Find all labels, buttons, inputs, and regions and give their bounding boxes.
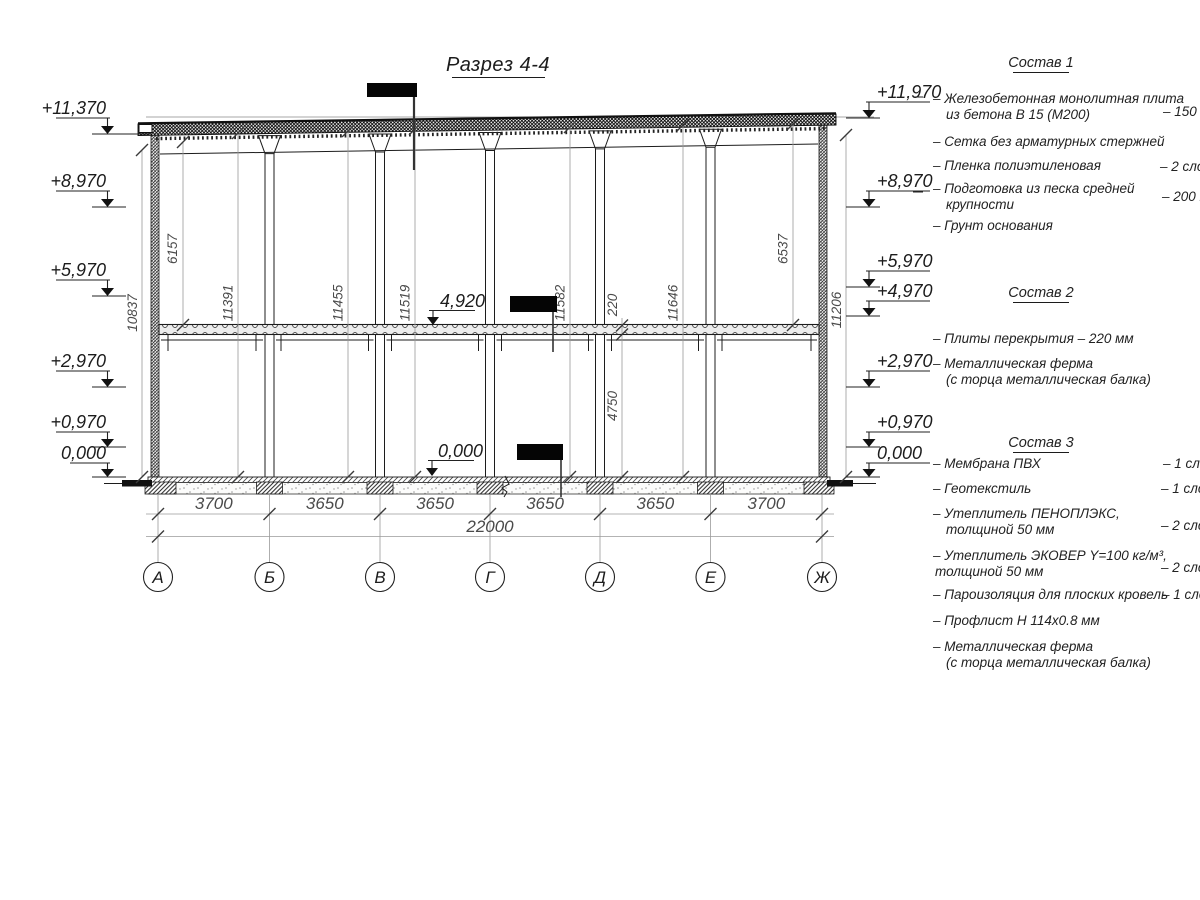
bottom-dimensions: 3700 3650 3650 3650 3650 3700 22000: [146, 494, 834, 562]
note-item: – Грунт основания: [932, 218, 1053, 233]
svg-text:Ж: Ж: [813, 568, 831, 587]
mark-left-5: 0,000: [61, 443, 126, 477]
svg-text:+4,970: +4,970: [877, 281, 933, 301]
svg-text:– 1 слой: – 1 слой: [1160, 481, 1200, 496]
note-item: – Железобетонная монолитная плита: [932, 91, 1184, 106]
note-item: – Металлическая ферма: [932, 356, 1094, 371]
note-item: – Пленка полиэтиленовая: [932, 158, 1101, 173]
note-item: – Металлическая ферма: [932, 639, 1094, 654]
svg-text:+11,370: +11,370: [42, 98, 106, 118]
mark-right-3: +4,970: [846, 281, 933, 316]
drawing-title: Разрез 4-4: [446, 54, 550, 78]
sostav3-block: Состав 3 – Мембрана ПВХ – 1 слой – Геоте…: [932, 435, 1200, 670]
svg-text:(с торца металлическая балка): (с торца металлическая балка): [946, 655, 1151, 670]
span-dim-6: 3700: [747, 494, 785, 513]
svg-text:Б: Б: [264, 568, 275, 587]
note-item: – Сетка без арматурных стержней: [932, 134, 1165, 149]
svg-text:– 200 мм: – 200 мм: [1161, 189, 1200, 204]
redacted-box-mid: [510, 296, 557, 312]
vdim-10837: 10837: [125, 294, 140, 332]
notes-column: Состав 1 – Железобетонная монолитная пли…: [913, 55, 1200, 670]
svg-text:0,000: 0,000: [438, 441, 483, 461]
total-dim: 22000: [465, 517, 514, 536]
title-text: Разрез 4-4: [446, 54, 550, 76]
axis-v: В: [366, 563, 395, 592]
svg-text:Д: Д: [592, 568, 606, 587]
right-porch: [827, 480, 876, 487]
vdim-outer-left: 10837: [125, 144, 148, 483]
sostav1-block: Состав 1 – Железобетонная монолитная пли…: [913, 55, 1200, 233]
vertical-dimensions: 10837 6157 11391 11455 11519 11582: [125, 118, 852, 483]
svg-text:толщиной 50 мм: толщиной 50 мм: [935, 564, 1043, 579]
elevation-marks-right: +11,970 +8,970 +5,970 +4,970 +2,970 +0,9…: [846, 82, 941, 477]
elevation-marks-inner: 4,920 0,000: [426, 291, 485, 476]
vdim-11646: 11646: [666, 284, 681, 321]
callout-boxes: [367, 83, 563, 497]
vdim-11206: 11206: [829, 291, 844, 328]
svg-text:+0,970: +0,970: [50, 412, 106, 432]
columns: [259, 129, 722, 477]
svg-text:– 2 слоя: – 2 слоя: [1160, 518, 1200, 533]
vdim-4750: 4750: [605, 390, 620, 421]
sostav1-title: Состав 1: [1008, 55, 1073, 71]
vdim-11391: 11391: [221, 285, 236, 322]
mark-left-4: +0,970: [50, 412, 126, 447]
column-b: [259, 136, 281, 477]
note-item: – Утеплитель ЭКОВЕР Y=100 кг/м³,: [932, 548, 1167, 563]
span-dim-3: 3650: [416, 494, 454, 513]
svg-text:(с торца металлическая балка): (с торца металлическая балка): [946, 372, 1151, 387]
note-item: – Геотекстиль: [932, 481, 1031, 496]
redacted-box-bottom: [517, 444, 563, 460]
span-dim-4: 3650: [526, 494, 564, 513]
note-item: – Пароизоляция для плоских кровель: [932, 587, 1168, 602]
mark-inner-floor: 0,000: [426, 441, 483, 476]
redacted-box-top: [367, 83, 417, 97]
note-item: – Подготовка из песка средней: [932, 181, 1135, 196]
axis-e: Е: [696, 563, 725, 592]
svg-text:Е: Е: [705, 568, 717, 587]
mark-right-5: +0,970: [846, 412, 933, 447]
note-item: – Мембрана ПВХ: [932, 456, 1042, 471]
svg-text:+11,970: +11,970: [877, 82, 941, 102]
mark-left-1: +8,970: [50, 171, 126, 207]
svg-text:из бетона В 15 (М200): из бетона В 15 (М200): [946, 107, 1090, 122]
vdim-upper-right: 6537: [776, 118, 800, 331]
vdim-h5: 11646: [666, 119, 690, 483]
section-drawing: Разрез 4-4: [0, 0, 1200, 900]
svg-text:4,920: 4,920: [440, 291, 485, 311]
svg-text:крупности: крупности: [946, 197, 1015, 212]
axis-b: Б: [255, 563, 284, 592]
mark-left-0: +11,370: [42, 98, 150, 134]
svg-text:+5,970: +5,970: [877, 251, 933, 271]
svg-text:Г: Г: [485, 568, 496, 587]
svg-text:+2,970: +2,970: [877, 351, 933, 371]
svg-text:– 2 слоя: – 2 слоя: [1159, 159, 1200, 174]
axis-bubbles: А Б В Г Д Е Ж: [144, 563, 837, 592]
column-e: [700, 129, 722, 477]
svg-text:– 1 слой: – 1 слой: [1161, 587, 1200, 602]
note-item: – Утеплитель ПЕНОПЛЭКС,: [932, 506, 1120, 521]
axis-zh: Ж: [808, 563, 837, 592]
vdim-h1: 11391: [221, 127, 245, 483]
elevation-marks-left: +11,370 +8,970 +5,970 +2,970 +0,970 0,00…: [42, 98, 150, 477]
mark-left-2: +5,970: [50, 260, 126, 296]
svg-text:+0,970: +0,970: [877, 412, 933, 432]
svg-text:+8,970: +8,970: [877, 171, 933, 191]
mid-floor-beams: [161, 335, 817, 352]
vdim-11519: 11519: [398, 284, 413, 321]
sostav2-title: Состав 2: [1008, 285, 1073, 301]
svg-text:0,000: 0,000: [877, 443, 922, 463]
parapet-cap: [139, 125, 152, 133]
vdim-h3: 11519: [398, 123, 422, 483]
sostav2-block: Состав 2 – Плиты перекрытия – 220 мм – М…: [932, 285, 1151, 387]
svg-text:В: В: [374, 568, 385, 587]
axis-d: Д: [586, 563, 615, 592]
svg-text:– 150 мм: – 150 мм: [1162, 104, 1200, 119]
left-wall: [151, 133, 159, 477]
svg-text:+8,970: +8,970: [50, 171, 106, 191]
span-dim-5: 3650: [636, 494, 674, 513]
svg-text:+2,970: +2,970: [50, 351, 106, 371]
svg-text:толщиной 50 мм: толщиной 50 мм: [946, 522, 1054, 537]
vdim-h2: 11455: [331, 125, 355, 483]
svg-text:– 2 слоя: – 2 слоя: [1160, 560, 1200, 575]
mark-right-0: +11,970: [846, 82, 941, 118]
axis-g: Г: [476, 563, 505, 592]
vdim-6537: 6537: [776, 233, 791, 264]
vdim-220: 220: [605, 293, 620, 317]
mark-right-4: +2,970: [846, 351, 933, 387]
column-v: [369, 134, 391, 477]
mark-right-1: +8,970: [846, 171, 933, 207]
left-porch: [104, 480, 152, 487]
vdim-slab-and-storey: 220 4750: [605, 293, 628, 483]
note-item: – Профлист Н 114х0.8 мм: [932, 613, 1100, 628]
vdim-6157: 6157: [165, 233, 180, 264]
vdim-11455: 11455: [331, 284, 346, 321]
mark-left-3: +2,970: [50, 351, 126, 387]
sostav3-title: Состав 3: [1008, 435, 1073, 451]
svg-text:– 1 слой: – 1 слой: [1162, 456, 1200, 471]
axis-a: А: [144, 563, 173, 592]
svg-text:А: А: [151, 568, 163, 587]
mid-floor-slab: [159, 325, 819, 335]
vdim-outer-right: 11206: [829, 129, 852, 483]
span-dim-2: 3650: [306, 494, 344, 513]
note-item: – Плиты перекрытия – 220 мм: [932, 331, 1134, 346]
svg-text:0,000: 0,000: [61, 443, 106, 463]
svg-text:+5,970: +5,970: [50, 260, 106, 280]
right-wall: [819, 123, 827, 477]
mark-inner-mid: 4,920: [427, 291, 485, 325]
vdim-upper-left: 6157: [165, 136, 189, 331]
mark-right-6: 0,000: [846, 443, 930, 477]
span-dim-1: 3700: [195, 494, 233, 513]
